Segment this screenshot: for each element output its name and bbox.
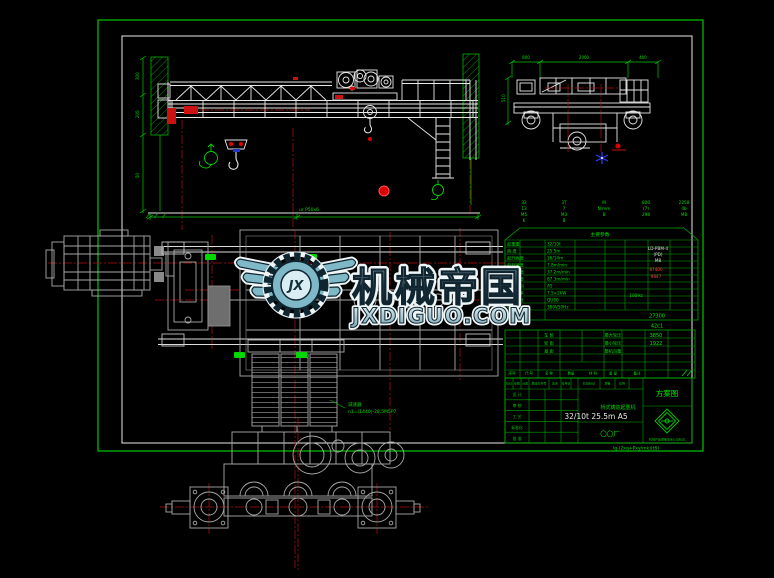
svg-text:车 轮: 车 轮	[544, 332, 555, 339]
red-detail	[335, 95, 343, 99]
svg-text:更改文件号: 更改文件号	[531, 381, 546, 386]
svg-text:名 称: 名 称	[545, 371, 554, 376]
svg-text:9847: 9847	[651, 274, 662, 279]
watermark-site: JXDIGUO.COM JXDIGUO.COM	[350, 304, 532, 328]
blue-marker	[596, 152, 608, 164]
red-detail	[616, 144, 621, 149]
svg-text:25.5m: 25.5m	[547, 249, 560, 254]
bom-header: 序号代 号 名 称数量 材 料重 量 备注	[509, 371, 642, 376]
outer-border	[98, 20, 703, 451]
gear-logo-icon: JX	[265, 254, 327, 316]
svg-text:32/10t: 32/10t	[547, 242, 561, 247]
bom-grid	[505, 330, 695, 378]
param-values: 32/10t25.5m 16/14m7.8m/min 37.2m/min87.3…	[547, 242, 570, 310]
svg-text:13: 13	[521, 206, 527, 211]
scheme-label: 方案图	[656, 388, 679, 398]
dim-bottom	[147, 213, 481, 220]
svg-text:序号: 序号	[509, 371, 517, 376]
svg-text:3850: 3850	[650, 333, 663, 339]
certification-diamond-icon	[655, 409, 679, 433]
gearbox-cover	[208, 286, 230, 326]
svg-text:起重量: 起重量	[507, 241, 520, 248]
svg-text:M3: M3	[561, 212, 568, 217]
svg-text:7.5×2kW: 7.5×2kW	[547, 291, 566, 296]
gear-housings	[232, 426, 404, 474]
svg-text:起升高度: 起升高度	[507, 255, 525, 262]
svg-text:重 量: 重 量	[609, 371, 618, 376]
svg-text:M8: M8	[681, 212, 688, 217]
svg-text:轮 距: 轮 距	[544, 340, 554, 347]
svg-text:100Hz: 100Hz	[629, 293, 643, 298]
dim-label: 2000	[579, 55, 590, 60]
ladder	[432, 118, 454, 178]
svg-text:87.3m/min: 87.3m/min	[547, 277, 570, 282]
svg-text:7: 7	[563, 206, 566, 211]
svg-text:JXDIGUO.COM: JXDIGUO.COM	[350, 304, 532, 328]
parameter-table: 3213M5K 3T7M3B MN/mmB 800(7)298 22584bM8…	[505, 200, 698, 330]
svg-text:年月日: 年月日	[561, 381, 570, 386]
svg-text:M8: M8	[655, 258, 662, 263]
svg-text:42c1: 42c1	[651, 324, 663, 330]
svg-text:整机自重: 整机自重	[605, 348, 622, 355]
svg-text:2258: 2258	[679, 200, 690, 205]
svg-text:跨 度: 跨 度	[507, 248, 518, 255]
product-spec: 32/10t 25.5m A5	[564, 412, 627, 421]
svg-text:800: 800	[642, 200, 650, 205]
svg-text:比例: 比例	[619, 381, 625, 386]
cad-canvas: 300 205 50	[0, 0, 774, 578]
svg-text:数量: 数量	[568, 371, 576, 376]
svg-text:工 艺: 工 艺	[513, 414, 522, 419]
dim-label: 50	[135, 172, 140, 178]
centerlines	[160, 418, 428, 570]
wall-hatch-right	[463, 54, 479, 158]
girder	[158, 80, 478, 160]
gearbox	[168, 242, 208, 330]
rail-note: ur P50x6	[299, 207, 319, 213]
svg-text:298: 298	[642, 212, 650, 217]
svg-text:32: 32	[521, 200, 527, 205]
svg-text:K: K	[523, 218, 526, 223]
svg-text:M: M	[602, 200, 606, 205]
svg-text:87400: 87400	[649, 267, 663, 272]
svg-text:37.2m/min: 37.2m/min	[547, 270, 570, 275]
table-header-notes: 3213M5K 3T7M3B MN/mmB 800(7)298 22584bM8	[521, 200, 690, 223]
svg-text:A5: A5	[547, 284, 553, 289]
table-grid	[505, 240, 698, 320]
table-title: 主要参数	[590, 231, 609, 238]
svg-text:3T: 3T	[561, 200, 567, 205]
main-hook-block	[225, 140, 247, 169]
pulley-carriage	[166, 464, 420, 528]
title-block-grid	[505, 378, 692, 443]
svg-text:1922: 1922	[650, 341, 663, 347]
end-view-body	[514, 78, 650, 150]
dim-label: 800	[522, 55, 530, 60]
buffer-red	[184, 106, 198, 114]
dim-top	[509, 60, 661, 78]
coupling-pad	[154, 246, 164, 256]
svg-text:(PD): (PD)	[653, 252, 662, 257]
svg-text:380V50Hz: 380V50Hz	[547, 305, 569, 310]
anchor-symbol	[199, 144, 217, 168]
note-text: n1=(1440)-28.5M5P7	[348, 409, 397, 415]
svg-text:QU80: QU80	[547, 298, 559, 303]
drawing-number: lq-(2xq+Pxy/mk)(t6)	[613, 446, 659, 452]
trolley-end-view: 800 2000 400 510	[501, 55, 661, 164]
svg-text:(7): (7)	[643, 206, 649, 211]
dim-label: 510	[501, 94, 506, 102]
svg-text:27300: 27300	[649, 314, 665, 320]
svg-text:N/mm: N/mm	[598, 206, 611, 211]
svg-text:签名: 签名	[552, 381, 558, 386]
red-marker-dot	[379, 186, 389, 196]
svg-text:B: B	[603, 212, 606, 217]
note-text: 减速器	[348, 401, 362, 408]
svg-text:7.8m/min: 7.8m/min	[547, 263, 567, 268]
svg-text:质量: 质量	[604, 381, 610, 386]
pulley-assembly-bottom	[160, 418, 428, 570]
red-detail	[350, 87, 355, 90]
svg-text:分区: 分区	[522, 381, 528, 386]
company-name: 〇〇厂	[600, 430, 620, 438]
svg-text:材 料: 材 料	[589, 371, 598, 376]
svg-text:审 核: 审 核	[513, 403, 522, 408]
centerlines	[182, 110, 470, 230]
wall-hatch-left	[151, 57, 168, 135]
watermark: JX 机械帝国 机械帝国 JXDIGUO.COM JXDIGUO.COM	[237, 254, 532, 328]
svg-text:LD-PBM-4: LD-PBM-4	[648, 246, 669, 251]
svg-text:16/14m: 16/14m	[547, 256, 563, 261]
svg-text:备注: 备注	[634, 371, 642, 376]
svg-text:4b: 4b	[681, 206, 687, 211]
svg-text:B: B	[563, 218, 566, 223]
svg-text:阶段标记: 阶段标记	[583, 381, 595, 386]
product-title: 桥式铸造起重机	[600, 404, 635, 411]
dim-label: 300	[135, 72, 140, 80]
rev-header: 标记处数 分区更改文件号 签名年月日	[506, 381, 571, 386]
svg-text:最大轮压: 最大轮压	[605, 332, 622, 339]
svg-text:设 计: 设 计	[513, 392, 522, 397]
hook-symbol	[431, 180, 444, 200]
dim-label: 400	[639, 55, 647, 60]
dim-label: 205	[135, 110, 140, 118]
svg-text:处数: 处数	[514, 381, 520, 386]
bridge-elevation-view: 300 205 50	[135, 54, 481, 230]
red-detail	[293, 77, 298, 80]
logo-initials: JX	[286, 279, 305, 294]
buffer-red	[167, 108, 176, 124]
svg-text:M5: M5	[521, 212, 528, 217]
param-specials: LD-PBM-4 (PD) M8 87400 9847 100Hz 27300 …	[629, 246, 668, 330]
svg-text:批 准: 批 准	[513, 436, 522, 441]
svg-text:最小轮压: 最小轮压	[605, 340, 622, 347]
cert-note: 机械产品质量体系认证标志	[649, 437, 685, 442]
sign-labels: 设 计 审 核 工 艺 标准化 批 准	[511, 392, 523, 441]
svg-text:基 距: 基 距	[544, 348, 554, 354]
title-block: 标记处数 分区更改文件号 签名年月日 阶段标记 质量 比例 设 计 审 核 工 …	[505, 378, 692, 452]
aux-hook-block	[364, 106, 377, 142]
cad-drawing: 300 205 50	[0, 0, 774, 578]
drum-blocks	[248, 340, 344, 426]
svg-text:标记: 标记	[506, 381, 512, 386]
svg-text:代 号: 代 号	[525, 371, 534, 376]
bom-table: 车 轮最大轮压 3850 轮 距最小轮压 1922 基 距整机自重 序号代 号 …	[505, 330, 695, 378]
stage-header: 阶段标记 质量 比例	[583, 381, 625, 386]
bom-rows: 车 轮最大轮压 3850 轮 距最小轮压 1922 基 距整机自重	[544, 332, 662, 355]
coupling-pad	[154, 272, 164, 282]
svg-text:标准化: 标准化	[511, 425, 523, 430]
